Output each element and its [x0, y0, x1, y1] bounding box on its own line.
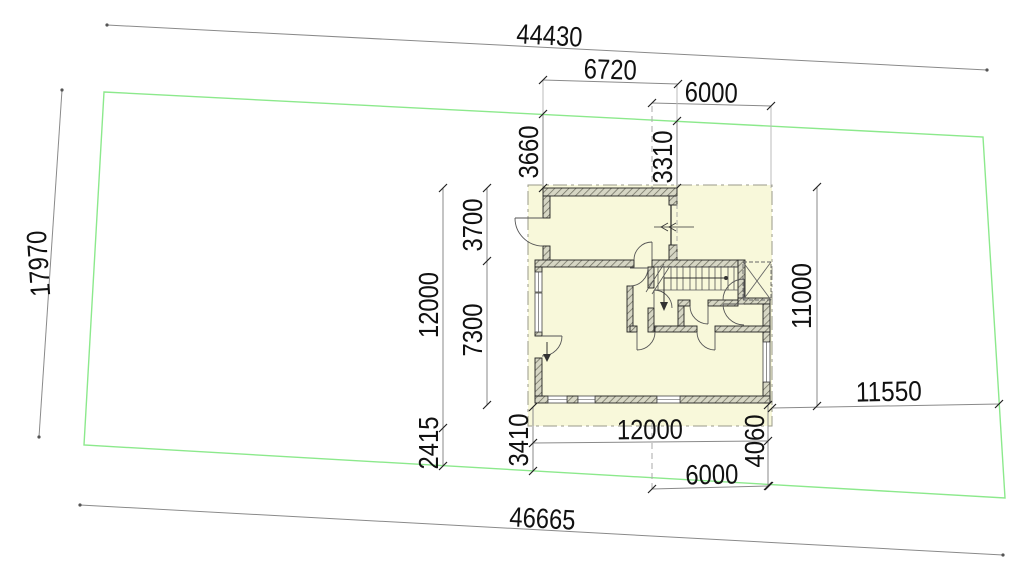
dim-label-3700: 3700	[457, 199, 488, 252]
wall	[543, 196, 550, 218]
site-plan-canvas: 44430 6720 6000 17970 3660 3310 3700 730…	[0, 0, 1024, 575]
wall-interior	[678, 306, 684, 326]
wall-left	[535, 267, 542, 272]
wall-left	[535, 332, 542, 336]
wall-mid	[652, 260, 738, 267]
wall-bottom	[595, 396, 657, 403]
wall	[738, 298, 770, 304]
wall-bottom	[567, 396, 578, 403]
dim-label-12000-left: 12000	[413, 272, 444, 338]
dim-label-6000-bottom: 6000	[685, 459, 739, 491]
dim-label-3310: 3310	[647, 131, 678, 184]
wall-mid	[535, 260, 634, 267]
wall-interior	[655, 326, 697, 332]
dim-label-6000-top: 6000	[684, 76, 738, 108]
wall-bottom	[680, 396, 770, 403]
wall-interior	[678, 300, 690, 306]
wall-interior	[627, 286, 633, 332]
wall-bottom	[535, 396, 548, 403]
dim-label-7300: 7300	[457, 304, 488, 357]
dim-label-4060: 4060	[739, 415, 770, 468]
dimension-lines	[39, 25, 1003, 555]
dim-label-site-left: 17970	[21, 230, 57, 298]
dim-label-12000-bottom: 12000	[617, 414, 683, 446]
wall-top	[543, 188, 677, 196]
dim-label-site-bottom: 46665	[509, 501, 577, 535]
wall-left	[535, 358, 542, 396]
dimension-end-dots	[37, 23, 1004, 556]
dim-label-11550: 11550	[856, 375, 923, 407]
wall	[669, 196, 677, 205]
dim-label-2415: 2415	[413, 417, 444, 470]
dim-label-3660: 3660	[513, 126, 544, 179]
dim-label-6720: 6720	[583, 53, 637, 85]
dim-label-site-top: 44430	[516, 18, 584, 52]
wall-right	[763, 304, 770, 342]
dim-label-3410: 3410	[503, 414, 534, 467]
wall-interior	[630, 326, 637, 332]
wall-interior	[715, 326, 770, 332]
dimension-labels: 44430 6720 6000 17970 3660 3310 3700 730…	[21, 18, 922, 535]
site-plan-page: 44430 6720 6000 17970 3660 3310 3700 730…	[0, 0, 1024, 575]
wall-interior	[648, 308, 654, 332]
wall	[669, 245, 677, 262]
dim-label-11000: 11000	[786, 263, 817, 329]
